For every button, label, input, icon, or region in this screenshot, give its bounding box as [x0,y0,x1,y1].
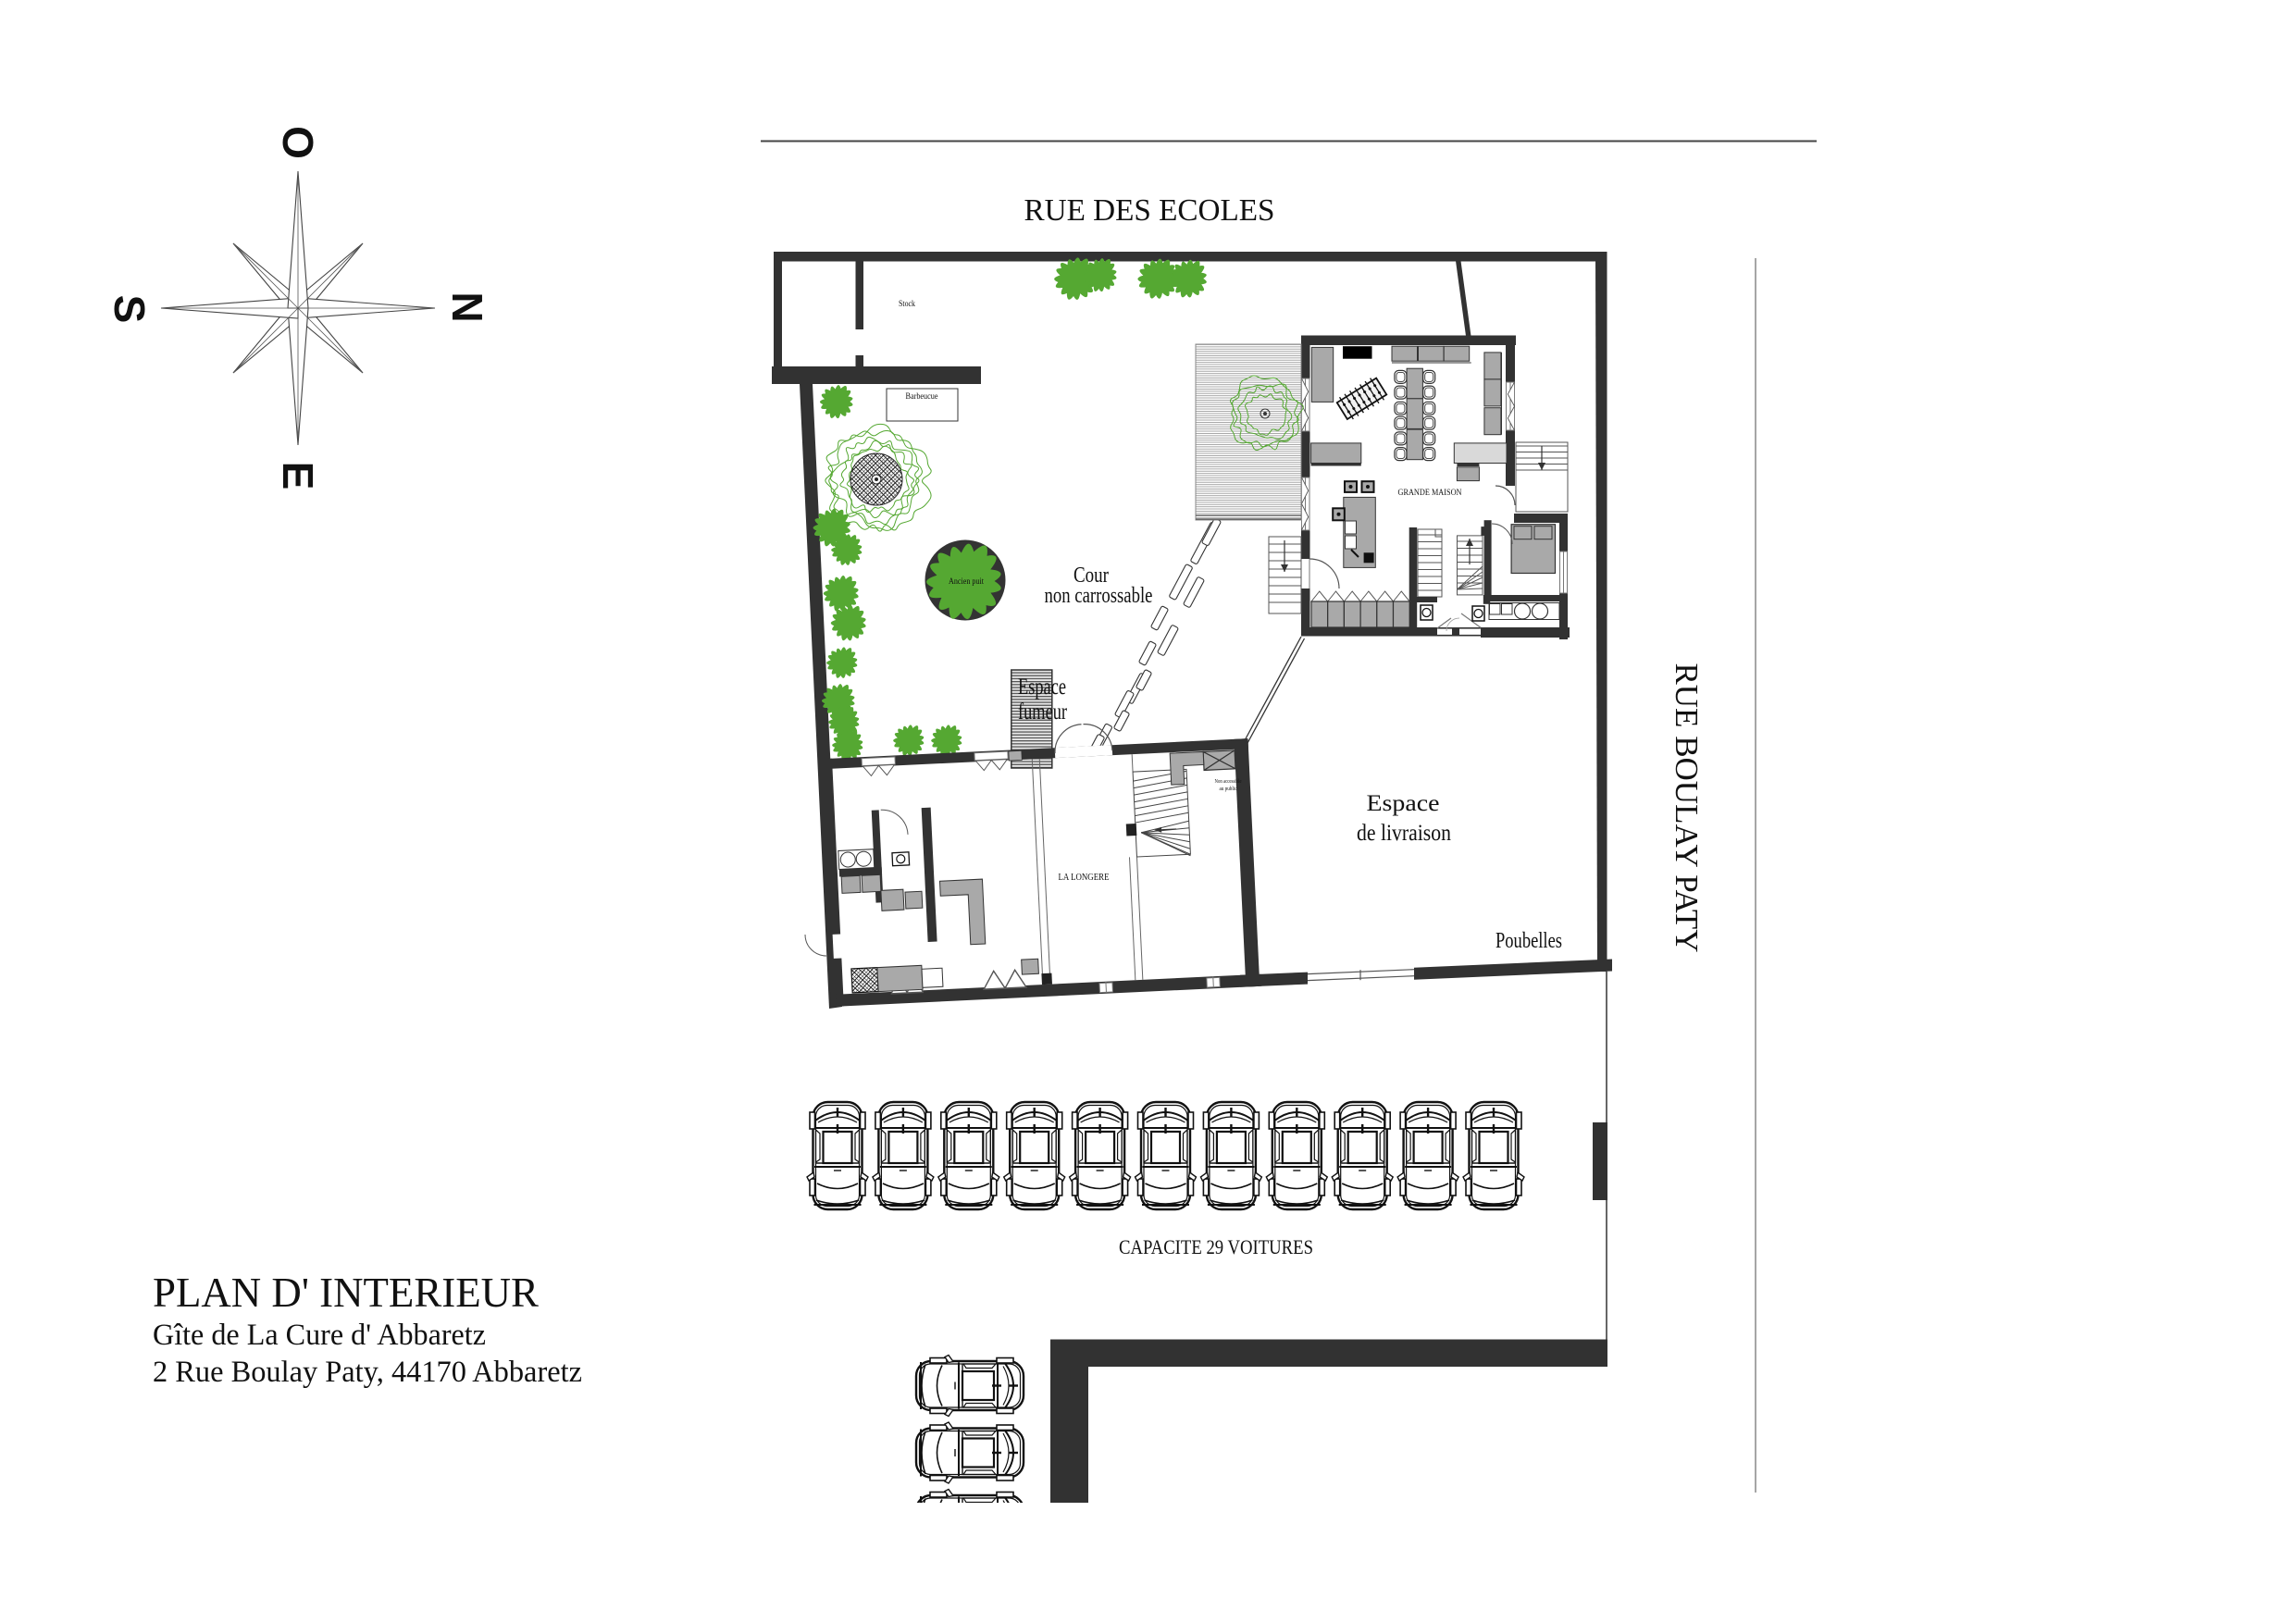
svg-text:Ancien puit: Ancien puit [949,577,984,587]
svg-text:RUE DES ECOLES: RUE DES ECOLES [1024,193,1275,228]
svg-text:PLAN D' INTERIEUR: PLAN D' INTERIEUR [153,1269,539,1316]
svg-text:non carrossable: non carrossable [1045,583,1153,608]
svg-text:LA LONGERE: LA LONGERE [1059,873,1110,883]
svg-text:N: N [443,291,491,322]
svg-text:Non accessible: Non accessible [1215,778,1242,785]
svg-text:CAPACITE 29 VOITURES: CAPACITE 29 VOITURES [1119,1235,1313,1258]
svg-text:au public: au public [1220,786,1237,792]
svg-text:Espace: Espace [1367,791,1440,816]
svg-text:E: E [274,462,322,490]
svg-text:O: O [274,126,322,159]
svg-text:de livraison: de livraison [1357,821,1451,846]
svg-text:Poubelles: Poubelles [1496,929,1562,953]
svg-text:Gîte de La Cure d' Abbaretz: Gîte de La Cure d' Abbaretz [153,1319,486,1352]
svg-text:Barbeucue: Barbeucue [906,391,938,401]
svg-text:Stock: Stock [899,299,915,308]
svg-text:RUE BOULAY PATY: RUE BOULAY PATY [1669,663,1705,952]
svg-text:Espace: Espace [1018,673,1066,700]
svg-text:GRANDE MAISON: GRANDE MAISON [1398,488,1462,497]
svg-text:2 Rue Boulay Paty, 44170 Abbar: 2 Rue Boulay Paty, 44170 Abbaretz [153,1356,582,1389]
svg-text:S: S [105,295,154,324]
svg-text:fumeur: fumeur [1018,698,1067,725]
